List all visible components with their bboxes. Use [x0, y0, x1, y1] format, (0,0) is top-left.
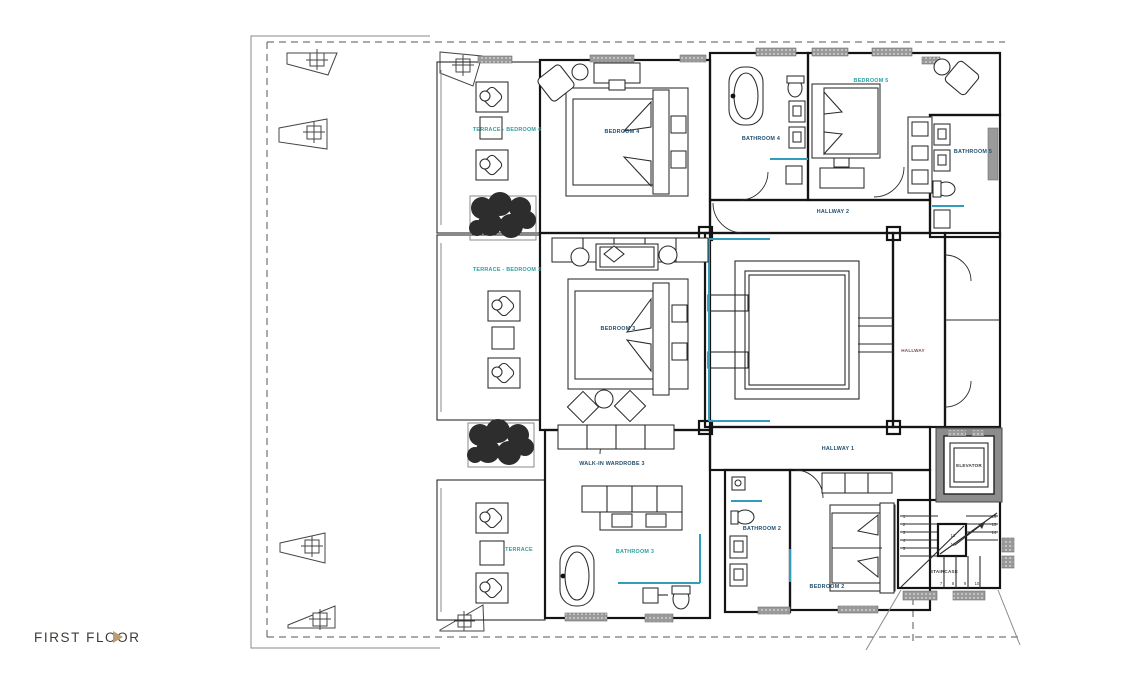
- label-hallway1: HALLWAY 1: [822, 446, 855, 452]
- label-bathroom3: BATHROOM 3: [616, 549, 654, 555]
- floor-plan-page: 1 2 3 4 5 7 8 9 10 16 15 14 13 12 TERRAC…: [0, 0, 1122, 692]
- stair-number: 7: [940, 581, 943, 586]
- label-walkin-wardrobe3: WALK-IN WARDROBE 3: [579, 461, 645, 467]
- label-bedroom3: BEDROOM 3: [601, 326, 636, 332]
- label-elevator: ELEVATOR: [956, 463, 982, 468]
- stair-number: 8: [952, 581, 955, 586]
- terraces-structure: [437, 62, 545, 620]
- terrace-spotlight-icons: [279, 49, 484, 631]
- label-hallway2: HALLWAY 2: [817, 209, 850, 215]
- stair-number: 13: [951, 533, 956, 538]
- bathroom3-fixtures: [560, 534, 700, 609]
- lounge-chair: [476, 573, 508, 603]
- stair-number: 12: [951, 542, 956, 547]
- label-bedroom2: BEDROOM 2: [810, 584, 845, 590]
- staircase-steps: 1 2 3 4 5 7 8 9 10 16 15 14 13 12: [900, 513, 998, 588]
- lounge-chair: [476, 82, 508, 112]
- label-hallway: HALLWAY: [901, 348, 924, 353]
- label-terrace: TERRACE: [505, 547, 533, 553]
- label-bathroom4: BATHROOM 4: [742, 136, 780, 142]
- floor-plan-drawing: 1 2 3 4 5 7 8 9 10 16 15 14 13 12 TERRAC…: [0, 0, 1122, 692]
- stair-number: 14: [992, 530, 997, 535]
- floor-selector[interactable]: FIRST FLOOR: [34, 630, 141, 645]
- stair-number: 15: [992, 522, 997, 527]
- stair-number: 9: [964, 581, 967, 586]
- walkin-wardrobe3-units: [558, 425, 682, 530]
- lounge-chair: [476, 150, 508, 180]
- label-bedroom5: BEDROOM 5: [854, 78, 889, 84]
- courtyard-void: [699, 227, 900, 434]
- stair-number: 10: [975, 581, 980, 586]
- label-bathroom2: BATHROOM 2: [743, 526, 781, 532]
- bedroom2-furniture: [822, 473, 895, 593]
- label-terrace-bedroom4: TERRACE - BEDROOM 4: [473, 127, 541, 133]
- lounge-chair: [476, 503, 508, 533]
- label-staircase: STAIRCASE: [930, 569, 958, 574]
- bathroom5-fixtures: [932, 124, 964, 228]
- bathroom4-fixtures: [729, 67, 808, 184]
- bedroom5-furniture: [812, 59, 980, 193]
- lounge-chair: [488, 291, 520, 321]
- terrace-lounge-furniture: [476, 82, 520, 603]
- floor-title: FIRST FLOOR: [34, 630, 141, 645]
- label-terrace-bedroom3: TERRACE - BEDROOM 3: [473, 267, 541, 273]
- stair-number: 16: [992, 514, 997, 519]
- label-bathroom5: BATHROOM 5: [954, 149, 992, 155]
- label-bedroom4: BEDROOM 4: [605, 129, 640, 135]
- lounge-chair: [488, 358, 520, 388]
